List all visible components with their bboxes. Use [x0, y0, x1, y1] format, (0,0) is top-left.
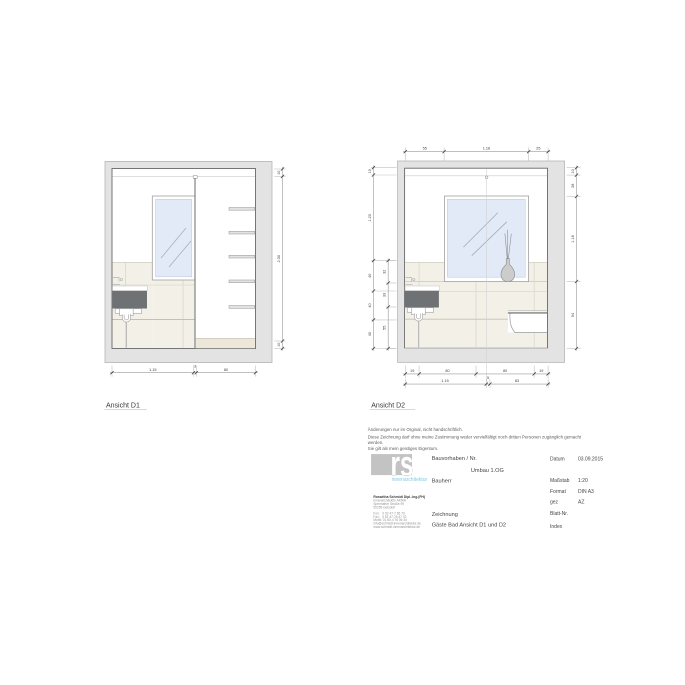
svg-text:Blatt-Nr.: Blatt-Nr. — [550, 511, 568, 517]
svg-text:33: 33 — [383, 293, 387, 297]
svg-text:3: 3 — [194, 364, 196, 368]
svg-text:1.18: 1.18 — [571, 235, 575, 242]
svg-text:94: 94 — [571, 313, 575, 317]
svg-text:gez: gez — [550, 500, 559, 506]
svg-text:80: 80 — [503, 369, 507, 373]
svg-text:Ansicht D2: Ansicht D2 — [371, 403, 405, 410]
svg-text:25: 25 — [536, 147, 540, 151]
svg-text:28: 28 — [571, 184, 575, 188]
svg-text:DIN A3: DIN A3 — [578, 489, 594, 495]
svg-text:AZ: AZ — [578, 500, 584, 506]
svg-text:Gäste Bad Ansicht D1 und D2: Gäste Bad Ansicht D1 und D2 — [432, 522, 506, 528]
svg-text:Format: Format — [550, 489, 566, 495]
svg-text:10: 10 — [571, 169, 575, 173]
svg-text:83: 83 — [515, 379, 519, 383]
svg-text:40: 40 — [368, 274, 372, 278]
svg-text:www.schmidt-innenarchitektur.d: www.schmidt-innenarchitektur.de — [373, 525, 420, 529]
svg-text:Ansicht D1: Ansicht D1 — [106, 403, 140, 410]
svg-text:1.20: 1.20 — [368, 214, 372, 221]
svg-text:19: 19 — [410, 369, 414, 373]
svg-text:50259 Gelsdorf: 50259 Gelsdorf — [373, 505, 395, 509]
svg-text:03.09.2015: 03.09.2015 — [578, 457, 603, 463]
svg-text:5: 5 — [487, 376, 489, 380]
svg-text:Datum: Datum — [550, 457, 565, 463]
svg-text:55: 55 — [383, 326, 387, 330]
svg-text:Bauvorhaben / Nr.: Bauvorhaben / Nr. — [432, 456, 478, 462]
svg-text:werden.: werden. — [368, 440, 384, 445]
svg-text:80: 80 — [224, 368, 228, 372]
svg-text:55: 55 — [423, 147, 427, 151]
svg-text:19: 19 — [539, 369, 543, 373]
svg-text:10: 10 — [277, 171, 281, 175]
svg-text:40: 40 — [368, 332, 372, 336]
svg-text:Diese Zeichnung darf ohne mein: Diese Zeichnung darf ohne meine Zustimmu… — [368, 435, 582, 440]
svg-text:Umbau 1.OG: Umbau 1.OG — [471, 468, 504, 474]
svg-text:40: 40 — [368, 303, 372, 307]
svg-text:Bauherr: Bauherr — [432, 479, 452, 485]
svg-text:Änderungen nur im Orginal, nic: Änderungen nur im Orginal, nicht handsch… — [368, 427, 463, 432]
svg-text:80: 80 — [445, 369, 449, 373]
svg-text:10: 10 — [277, 343, 281, 347]
svg-text:2.30: 2.30 — [277, 255, 281, 262]
svg-text:1:20: 1:20 — [578, 478, 588, 484]
svg-text:innenarchitektur: innenarchitektur — [392, 477, 428, 483]
svg-text:1.15: 1.15 — [149, 368, 156, 372]
svg-text:1.15: 1.15 — [441, 379, 448, 383]
svg-text:1.18: 1.18 — [483, 147, 490, 151]
svg-text:Maßstab: Maßstab — [550, 478, 570, 484]
svg-text:32: 32 — [383, 270, 387, 274]
svg-text:Zeichnung: Zeichnung — [432, 512, 458, 518]
svg-text:Index: Index — [550, 524, 563, 530]
svg-text:10: 10 — [368, 169, 372, 173]
